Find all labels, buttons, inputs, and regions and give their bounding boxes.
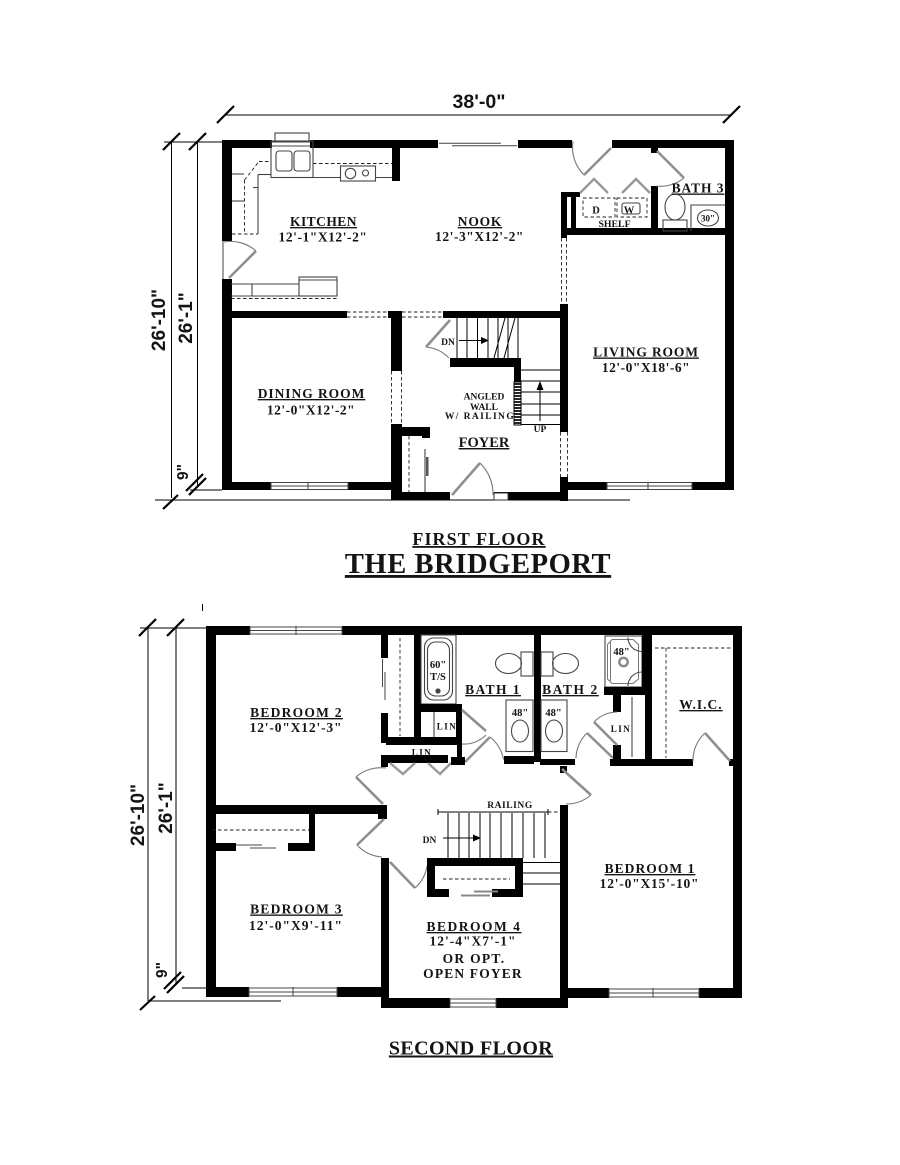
svg-text:LIVING ROOM: LIVING ROOM	[593, 345, 699, 360]
svg-text:60": 60"	[430, 660, 446, 671]
svg-text:30": 30"	[701, 214, 715, 224]
svg-text:12'-1"X12'-2": 12'-1"X12'-2"	[279, 230, 368, 245]
svg-text:BATH 2: BATH 2	[542, 682, 599, 697]
svg-text:NOOK: NOOK	[458, 214, 502, 229]
svg-text:LIN: LIN	[611, 724, 632, 734]
svg-text:SHELF: SHELF	[598, 219, 630, 230]
svg-text:12'-0"X12'-2": 12'-0"X12'-2"	[267, 403, 355, 418]
svg-text:W: W	[624, 206, 635, 217]
svg-text:26'-1": 26'-1"	[176, 292, 197, 344]
svg-text:12'-0"X18'-6": 12'-0"X18'-6"	[602, 360, 690, 375]
svg-text:9": 9"	[154, 962, 171, 978]
svg-text:12'-0"X12'-3": 12'-0"X12'-3"	[250, 720, 343, 735]
svg-text:12'-3"X12'-2": 12'-3"X12'-2"	[435, 229, 524, 244]
svg-text:12'-0"X15'-10": 12'-0"X15'-10"	[600, 876, 700, 891]
svg-text:LIN: LIN	[412, 748, 433, 758]
svg-text:48": 48"	[545, 708, 561, 719]
svg-text:D: D	[592, 206, 600, 217]
svg-text:UP: UP	[534, 425, 547, 435]
svg-text:12'-0"X9'-11": 12'-0"X9'-11"	[249, 918, 343, 933]
svg-text:OPEN FOYER: OPEN FOYER	[423, 966, 523, 981]
svg-text:BATH 3: BATH 3	[672, 181, 725, 196]
svg-text:OR OPT.: OR OPT.	[443, 951, 506, 966]
svg-text:48": 48"	[512, 708, 528, 719]
svg-text:9": 9"	[175, 464, 192, 480]
svg-text:FIRST FLOOR: FIRST FLOOR	[412, 529, 545, 549]
svg-text:26'-10": 26'-10"	[128, 784, 149, 846]
svg-text:DN: DN	[423, 836, 437, 846]
svg-text:BATH 1: BATH 1	[465, 682, 521, 697]
svg-text:T/S: T/S	[430, 672, 446, 683]
svg-text:SECOND FLOOR: SECOND FLOOR	[389, 1038, 553, 1060]
svg-text:ANGLED: ANGLED	[464, 393, 505, 403]
svg-text:DN: DN	[441, 338, 455, 348]
svg-text:38'-0": 38'-0"	[453, 91, 506, 113]
svg-text:26'-1": 26'-1"	[156, 782, 177, 834]
svg-text:LIN: LIN	[437, 722, 458, 732]
svg-text:48": 48"	[613, 647, 629, 658]
svg-text:RAILING: RAILING	[487, 801, 533, 811]
svg-text:KITCHEN: KITCHEN	[290, 214, 357, 229]
svg-text:BEDROOM 3: BEDROOM 3	[250, 902, 343, 917]
svg-text:BEDROOM 1: BEDROOM 1	[605, 861, 696, 876]
svg-text:DINING ROOM: DINING ROOM	[258, 386, 366, 401]
svg-text:12'-4"X7'-1": 12'-4"X7'-1"	[430, 934, 517, 949]
svg-text:W.I.C.: W.I.C.	[679, 697, 722, 712]
svg-text:BEDROOM 4: BEDROOM 4	[427, 919, 522, 934]
svg-text:BEDROOM 2: BEDROOM 2	[250, 705, 343, 720]
svg-text:THE BRIDGEPORT: THE BRIDGEPORT	[345, 549, 611, 580]
svg-text:26'-10": 26'-10"	[149, 289, 170, 351]
svg-text:W/ RAILING: W/ RAILING	[445, 412, 515, 422]
svg-text:FOYER: FOYER	[459, 435, 510, 451]
